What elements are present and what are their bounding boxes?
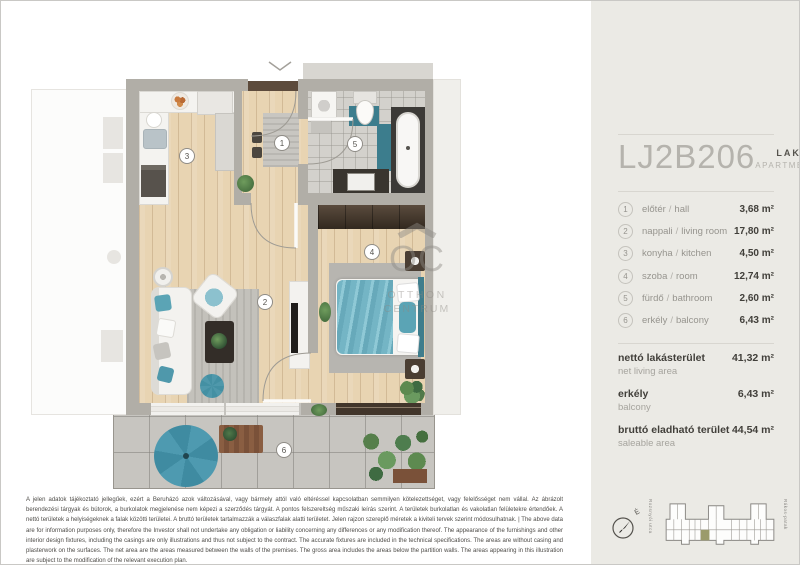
separator: / (676, 226, 679, 237)
total-label-hu: bruttó eladható terület (618, 424, 729, 436)
room-name-hu: fürdő (642, 293, 664, 304)
total-label-en: net living area (618, 366, 705, 377)
plan-room-number-1: 1 (274, 135, 290, 151)
room-area: 17,80 m² (734, 226, 774, 237)
room-row: 3 konyha/kitchen 4,50 m² (618, 243, 774, 265)
totals: nettó lakásterület net living area 41,32… (618, 352, 774, 460)
room-number-badge: 1 (618, 202, 633, 217)
total-row: erkély balcony 6,43 m² (618, 388, 774, 413)
siteplan-unit-highlight (701, 530, 710, 541)
wall-plant (311, 404, 327, 416)
room-number-badge: 6 (618, 313, 633, 328)
sidebar: LJ2B206 LAKÁS APARTMENT 1 előtér/hall 3,… (591, 1, 800, 565)
room-name-en: balcony (676, 315, 709, 326)
separator: / (670, 271, 673, 282)
compass-icon (611, 516, 635, 540)
plan-room-number-4: 4 (364, 244, 380, 260)
total-row: nettó lakásterület net living area 41,32… (618, 352, 774, 377)
separator: / (670, 315, 673, 326)
room-area: 6,43 m² (740, 315, 774, 326)
room-row: 4 szoba/room 12,74 m² (618, 265, 774, 287)
room-number-badge: 4 (618, 269, 633, 284)
unit-code: LJ2B206 (618, 140, 755, 173)
room-number-badge: 3 (618, 246, 633, 261)
room-name-en: hall (674, 204, 689, 215)
unit-header: LJ2B206 LAKÁS APARTMENT (618, 140, 774, 173)
total-label-hu: erkély (618, 388, 651, 400)
separator: / (669, 204, 672, 215)
floorplan-page: 1 2 3 4 5 6 OC OTTHON CENTRUM LJ2B206 LA… (0, 0, 800, 565)
room-name-en: kitchen (681, 248, 711, 259)
unit-type-en: APARTMENT (755, 161, 800, 170)
plan-room-number-6: 6 (276, 442, 292, 458)
room-name-hu: előtér (642, 204, 666, 215)
floorplan: 1 2 3 4 5 6 OC OTTHON CENTRUM (1, 1, 591, 565)
room-area: 2,60 m² (740, 293, 774, 304)
separator: / (667, 293, 670, 304)
room-row: 1 előtér/hall 3,68 m² (618, 198, 774, 220)
room-name-hu: erkély (642, 315, 667, 326)
room-number-badge: 2 (618, 224, 633, 239)
room-area: 4,50 m² (740, 248, 774, 259)
plan-room-number-3: 3 (179, 148, 195, 164)
street-label-right: Rákos-patak (783, 499, 788, 555)
room-name-en: living room (681, 226, 727, 237)
separator: / (676, 248, 679, 259)
total-label-en: balcony (618, 402, 651, 413)
total-label-hu: nettó lakásterület (618, 352, 705, 364)
siteplan-building (663, 500, 777, 550)
total-value: 44,54 m² (732, 424, 774, 449)
street-label-left: Rozsnyói utca (648, 499, 653, 555)
total-row: bruttó eladható terület saleable area 44… (618, 424, 774, 449)
room-name-hu: szoba (642, 271, 667, 282)
room-number-badge: 5 (618, 291, 633, 306)
room-name-en: bathroom (672, 293, 712, 304)
room-name-hu: nappali (642, 226, 673, 237)
divider (618, 191, 774, 192)
room-name-en: room (676, 271, 698, 282)
room-area: 3,68 m² (740, 204, 774, 215)
entrance-arrow-icon (269, 62, 291, 70)
total-value: 6,43 m² (738, 388, 774, 413)
room-name-hu: konyha (642, 248, 673, 259)
room-row: 6 erkély/balcony 6,43 m² (618, 309, 774, 331)
unit-type-hu: LAKÁS (755, 148, 800, 158)
total-value: 41,32 m² (732, 352, 774, 377)
divider (618, 134, 774, 135)
plan-room-number-2: 2 (257, 294, 273, 310)
room-list: 1 előtér/hall 3,68 m² 2 nappali/living r… (618, 198, 774, 332)
divider (618, 343, 774, 344)
plan-room-number-5: 5 (347, 136, 363, 152)
room-row: 5 fürdő/bathroom 2,60 m² (618, 287, 774, 309)
room-area: 12,74 m² (734, 271, 774, 282)
room-row: 2 nappali/living room 17,80 m² (618, 220, 774, 242)
door-swing-arcs (1, 1, 591, 565)
total-label-en: saleable area (618, 438, 729, 449)
kitchen-plant (237, 175, 254, 192)
